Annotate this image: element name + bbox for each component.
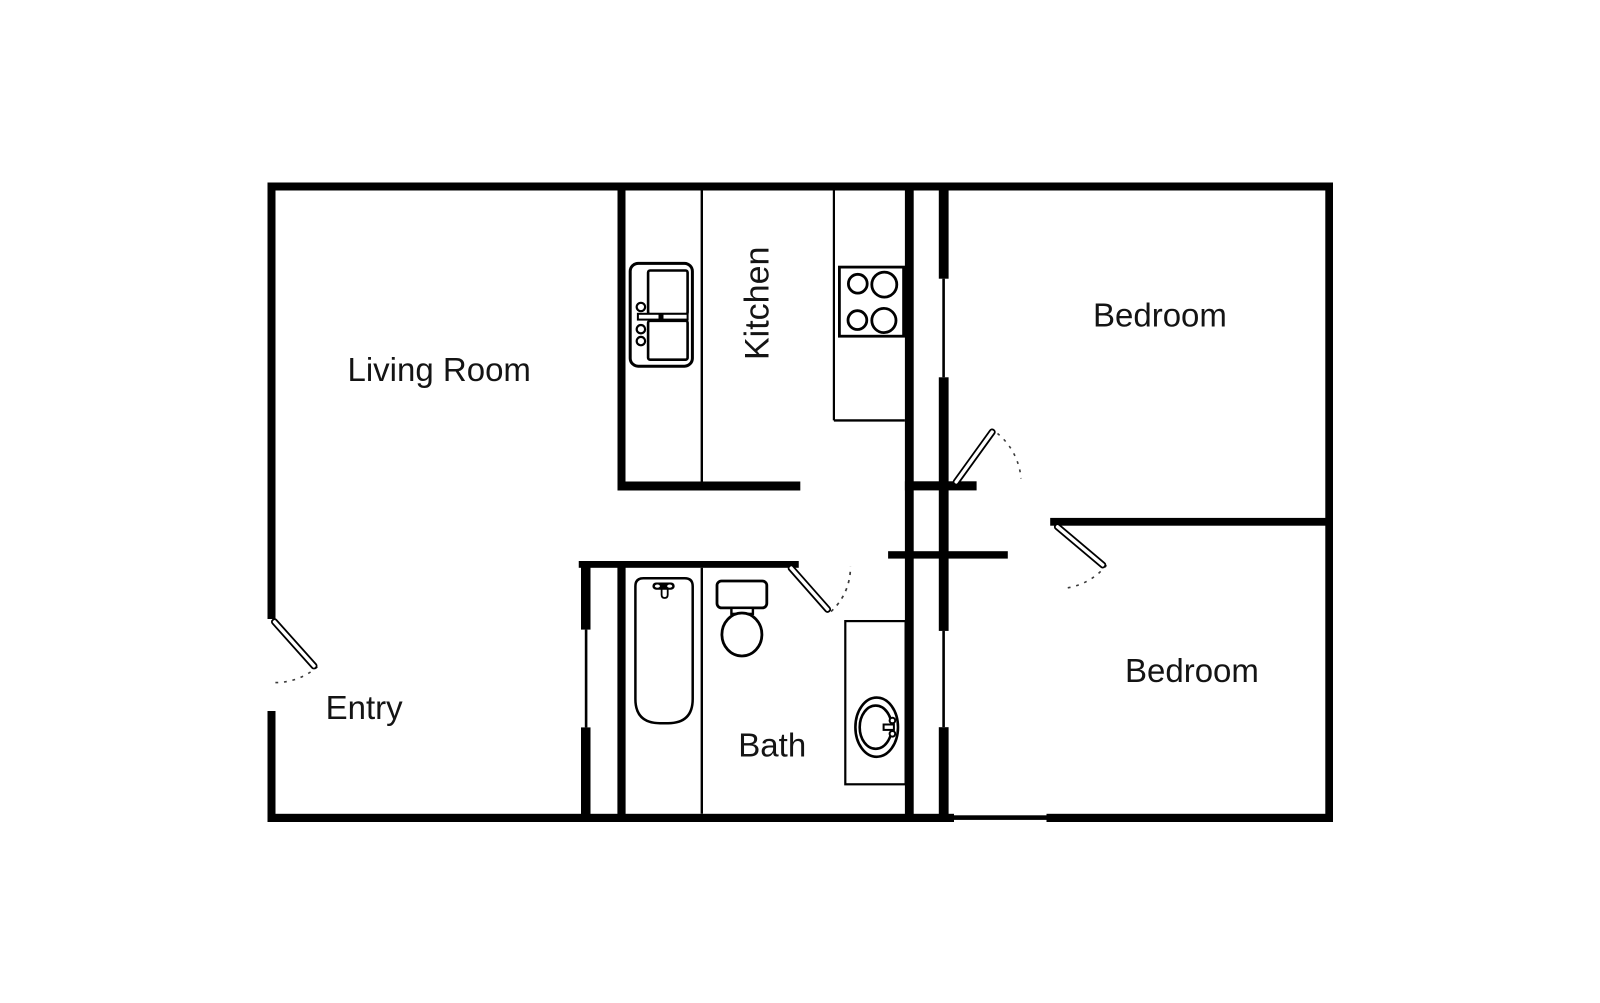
svg-text:Bedroom: Bedroom (1125, 652, 1259, 689)
svg-text:Bedroom: Bedroom (1093, 297, 1227, 334)
svg-text:Bath: Bath (738, 727, 806, 764)
svg-text:Kitchen: Kitchen (738, 247, 776, 360)
svg-text:Entry: Entry (326, 689, 404, 726)
svg-text:Living Room: Living Room (348, 351, 531, 388)
